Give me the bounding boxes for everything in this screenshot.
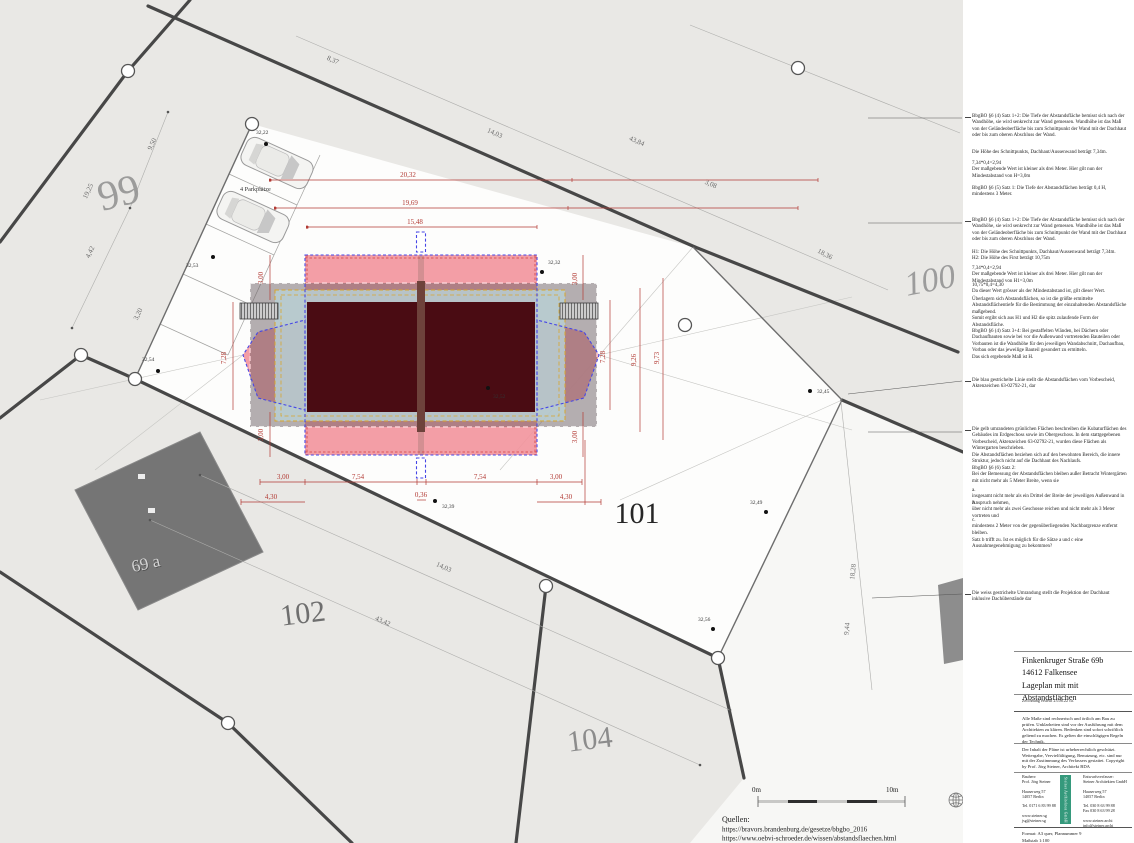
titleblock-rule-1 <box>1014 651 1132 652</box>
parcel-102: 102 <box>278 594 327 632</box>
ridge-line <box>417 281 425 432</box>
note-weisse-umrandung: Die weiss gestrichelte Umrandung stellt … <box>972 591 1129 604</box>
note-frage-ausnahme: Satz b trifft zu. Ist es möglich für die… <box>972 538 1129 551</box>
titleblock-rule-6 <box>1014 827 1132 828</box>
svg-text:32,54: 32,54 <box>142 357 155 363</box>
svg-text:4,30: 4,30 <box>560 493 573 501</box>
titleblock-note-copyright: Der Inhalt der Pläne ist urheberrechtlic… <box>1022 747 1128 770</box>
drawing-title: Finkenkruger Straße 69b 14612 Falkensee … <box>1022 655 1132 704</box>
note-ueberlagerung: Überlagern sich Abstandsflächen, so ist … <box>972 297 1129 329</box>
drawing-created-note: Zeichnung erstellt 23.06.22 ca. <box>1022 698 1130 703</box>
svg-text:0,36: 0,36 <box>415 491 428 499</box>
svg-text:32,53: 32,53 <box>186 263 199 269</box>
note-h1-h2: H1: Die Höhe des Schnittpunkts, Dachhaut… <box>972 250 1129 263</box>
note-bbgbo-6-4-satz12-b: BbgBO §6 (4) Satz 1+2: Die Tiefe der Abs… <box>972 218 1129 244</box>
svg-text:32,52: 32,52 <box>493 394 506 400</box>
titleblock-note-pruefung: Alle Maße sind rechnerisch und örtlich a… <box>1022 716 1128 745</box>
svg-text:32,49: 32,49 <box>750 500 763 506</box>
svg-text:9,26: 9,26 <box>630 353 638 366</box>
note-bedingung-c: c. mindestens 2 Meter von der gegenüberl… <box>972 518 1129 537</box>
svg-text:7,54: 7,54 <box>352 473 365 481</box>
svg-text:32,22: 32,22 <box>256 130 269 136</box>
svg-text:32,45: 32,45 <box>817 389 830 395</box>
source-url-2: https://www.oebvi-schroeder.de/wissen/ab… <box>722 835 896 843</box>
svg-text:7,54: 7,54 <box>474 473 487 481</box>
svg-text:7,28: 7,28 <box>220 351 228 364</box>
note-bbgbo-6-5-satz1: BbgBO §6 (5) Satz 1: Die Tiefe der Absta… <box>972 186 1129 199</box>
lageplan-sheet: 4 Parkplätze <box>0 0 1134 843</box>
svg-text:3,00: 3,00 <box>257 428 265 441</box>
compass-icon <box>949 793 963 807</box>
svg-text:7,28: 7,28 <box>599 350 607 363</box>
svg-text:19,69: 19,69 <box>402 199 418 207</box>
parcel-104: 104 <box>565 720 614 758</box>
site-plan: 4 Parkplätze <box>0 0 963 843</box>
svg-text:4,30: 4,30 <box>265 493 278 501</box>
parcel-101: 101 <box>615 497 660 530</box>
svg-text:9,44: 9,44 <box>842 622 851 636</box>
titleblock-rule-3 <box>1014 711 1132 712</box>
sources-heading: Quellen: <box>722 815 750 824</box>
svg-text:3,00: 3,00 <box>550 473 563 481</box>
titleblock-rule-4 <box>1014 743 1132 744</box>
note-bbgbo-6-6-satz2: BbgBO §6 (6) Satz 2: Bei der Bemessung d… <box>972 466 1129 485</box>
parking-label: 4 Parkplätze <box>240 186 271 193</box>
architect-logo-text: Steiner Architekten GmbH <box>1064 777 1068 823</box>
svg-text:3,00: 3,00 <box>571 272 579 285</box>
annotation-panel: BbgBO §6 (4) Satz 1+2: Die Tiefe der Abs… <box>963 0 1134 843</box>
architect-logo: Steiner Architekten GmbH <box>1060 775 1071 824</box>
note-berechnung-h2: 10,75*0,4=4,30 Da dieser Wert grösser al… <box>972 283 1129 296</box>
note-schnittpunkt-hoehe: Die Höhe des Schnittpunkts, Dachhaut/Aus… <box>972 150 1129 156</box>
note-bbgbo-6-4-satz34: BbgBO §6 (4) Satz 3+4: Bei gestaffelten … <box>972 329 1129 361</box>
svg-text:3,00: 3,00 <box>277 473 290 481</box>
svg-text:20,32: 20,32 <box>400 171 416 179</box>
note-bbgbo-6-4-satz12-a: BbgBO §6 (4) Satz 1+2: Die Tiefe der Abs… <box>972 114 1129 140</box>
svg-text:32,39: 32,39 <box>442 504 455 510</box>
titleblock-bauherr: Bauherr: Prof. Jörg Steiner Hauserweg 57… <box>1022 775 1059 824</box>
scale-bar-end: 10m <box>886 786 899 794</box>
titleblock-rule-2 <box>1014 694 1132 695</box>
sheet-format: Format: A3 quer, Plannummer 9 <box>1022 831 1081 836</box>
sheet-scale: Maßstab 1:100 <box>1022 838 1049 843</box>
svg-text:32,56: 32,56 <box>698 617 711 623</box>
svg-text:9,73: 9,73 <box>653 351 661 364</box>
note-gelbe-flaechen: Die gelb umrandeten grünlichen Flächen b… <box>972 427 1129 465</box>
note-berechnung-h: 7,34*0,4=2,94 Der maßgebende Wert ist kl… <box>972 161 1129 180</box>
svg-text:3,00: 3,00 <box>571 430 579 443</box>
svg-text:18,28: 18,28 <box>848 563 858 580</box>
svg-text:32,32: 32,32 <box>548 260 561 266</box>
svg-text:3,00: 3,00 <box>257 271 265 284</box>
titleblock-verfasser: Entwurfsverfasser: Steiner Architekten G… <box>1083 775 1132 829</box>
note-blaue-linie: Die blau gestrichelte Linie stellt die A… <box>972 378 1129 391</box>
titleblock-rule-5 <box>1014 772 1132 773</box>
source-url-1: https://bravors.brandenburg.de/gesetze/b… <box>722 826 868 834</box>
svg-text:15,48: 15,48 <box>407 218 423 226</box>
scale-bar-start: 0m <box>752 786 762 794</box>
